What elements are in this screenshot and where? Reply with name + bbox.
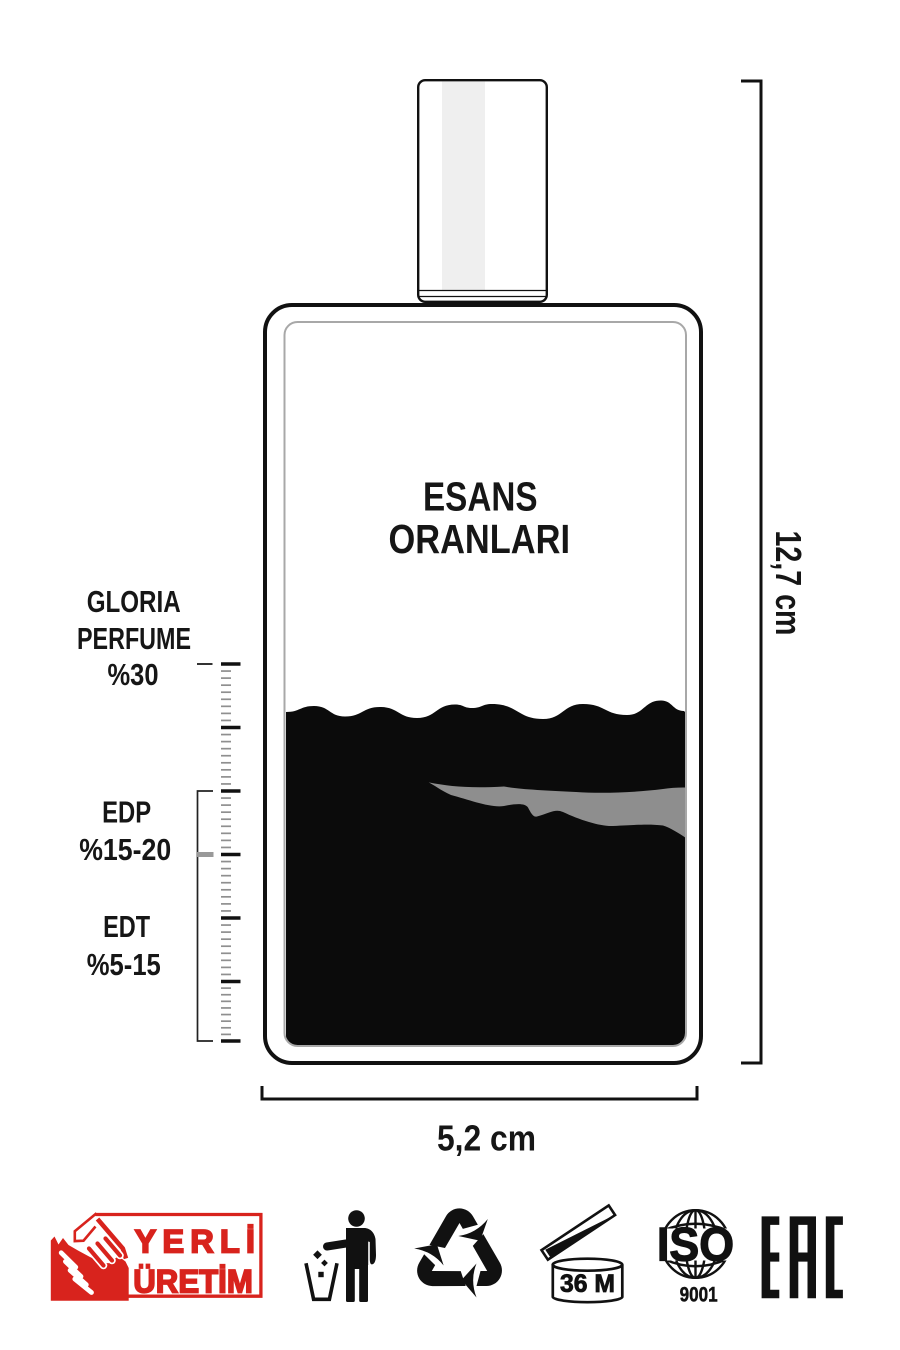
svg-text:ORANLARI: ORANLARI bbox=[389, 516, 571, 562]
svg-text:9001: 9001 bbox=[680, 1283, 718, 1307]
svg-text:GLORIA: GLORIA bbox=[87, 585, 181, 619]
svg-text:ISO: ISO bbox=[657, 1218, 734, 1271]
svg-text:EDT: EDT bbox=[103, 910, 150, 944]
svg-text:36 M: 36 M bbox=[560, 1271, 615, 1298]
svg-text:%30: %30 bbox=[108, 658, 159, 692]
svg-text:ÜRETİM: ÜRETİM bbox=[133, 1263, 253, 1300]
svg-text:5,2 cm: 5,2 cm bbox=[437, 1118, 536, 1159]
svg-text:12,7 cm: 12,7 cm bbox=[768, 531, 809, 636]
svg-text:ESANS: ESANS bbox=[423, 474, 538, 520]
svg-text:%5-15: %5-15 bbox=[87, 948, 161, 982]
svg-text:PERFUME: PERFUME bbox=[77, 622, 191, 656]
svg-text:EDP: EDP bbox=[102, 796, 151, 830]
svg-text:%15-20: %15-20 bbox=[79, 833, 171, 867]
svg-text:YERLİ: YERLİ bbox=[135, 1222, 256, 1259]
